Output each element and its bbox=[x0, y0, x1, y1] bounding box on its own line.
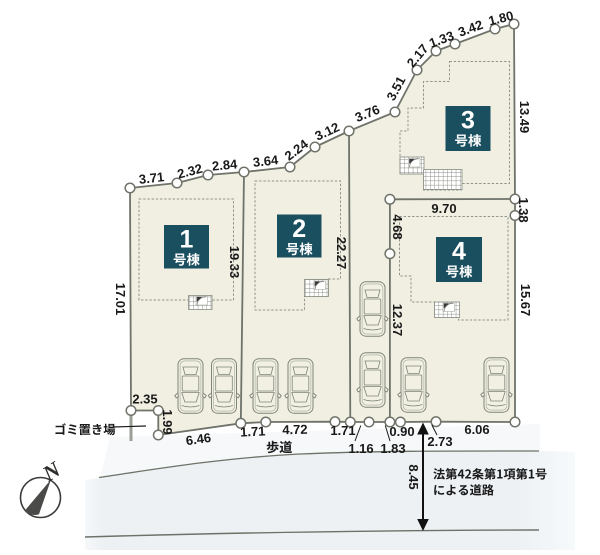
svg-text:1.71: 1.71 bbox=[330, 423, 355, 438]
svg-text:3.71: 3.71 bbox=[138, 169, 165, 187]
svg-text:1: 1 bbox=[180, 226, 194, 254]
svg-text:4.68: 4.68 bbox=[390, 214, 405, 239]
svg-text:9.70: 9.70 bbox=[431, 201, 456, 216]
svg-text:22.27: 22.27 bbox=[334, 237, 349, 270]
svg-text:1.99: 1.99 bbox=[160, 409, 175, 434]
svg-text:2.73: 2.73 bbox=[427, 434, 452, 449]
svg-text:12.37: 12.37 bbox=[390, 304, 405, 337]
svg-text:1.16: 1.16 bbox=[348, 441, 373, 456]
svg-text:1.71: 1.71 bbox=[240, 423, 266, 439]
svg-text:0.90: 0.90 bbox=[389, 424, 414, 439]
svg-text:2: 2 bbox=[292, 215, 306, 243]
svg-text:2.35: 2.35 bbox=[132, 392, 157, 407]
svg-text:4.72: 4.72 bbox=[282, 422, 308, 437]
svg-text:4: 4 bbox=[452, 238, 466, 266]
svg-text:19.33: 19.33 bbox=[227, 246, 242, 279]
svg-text:2.84: 2.84 bbox=[211, 156, 238, 173]
svg-text:3: 3 bbox=[461, 107, 475, 135]
svg-text:17.01: 17.01 bbox=[113, 283, 128, 316]
svg-text:15.67: 15.67 bbox=[518, 284, 533, 317]
svg-text:6.06: 6.06 bbox=[464, 422, 489, 437]
svg-text:1.83: 1.83 bbox=[380, 441, 405, 456]
svg-text:1.38: 1.38 bbox=[516, 197, 531, 222]
svg-text:3.64: 3.64 bbox=[252, 152, 279, 170]
svg-text:13.49: 13.49 bbox=[517, 101, 532, 134]
svg-text:8.45: 8.45 bbox=[406, 464, 421, 489]
